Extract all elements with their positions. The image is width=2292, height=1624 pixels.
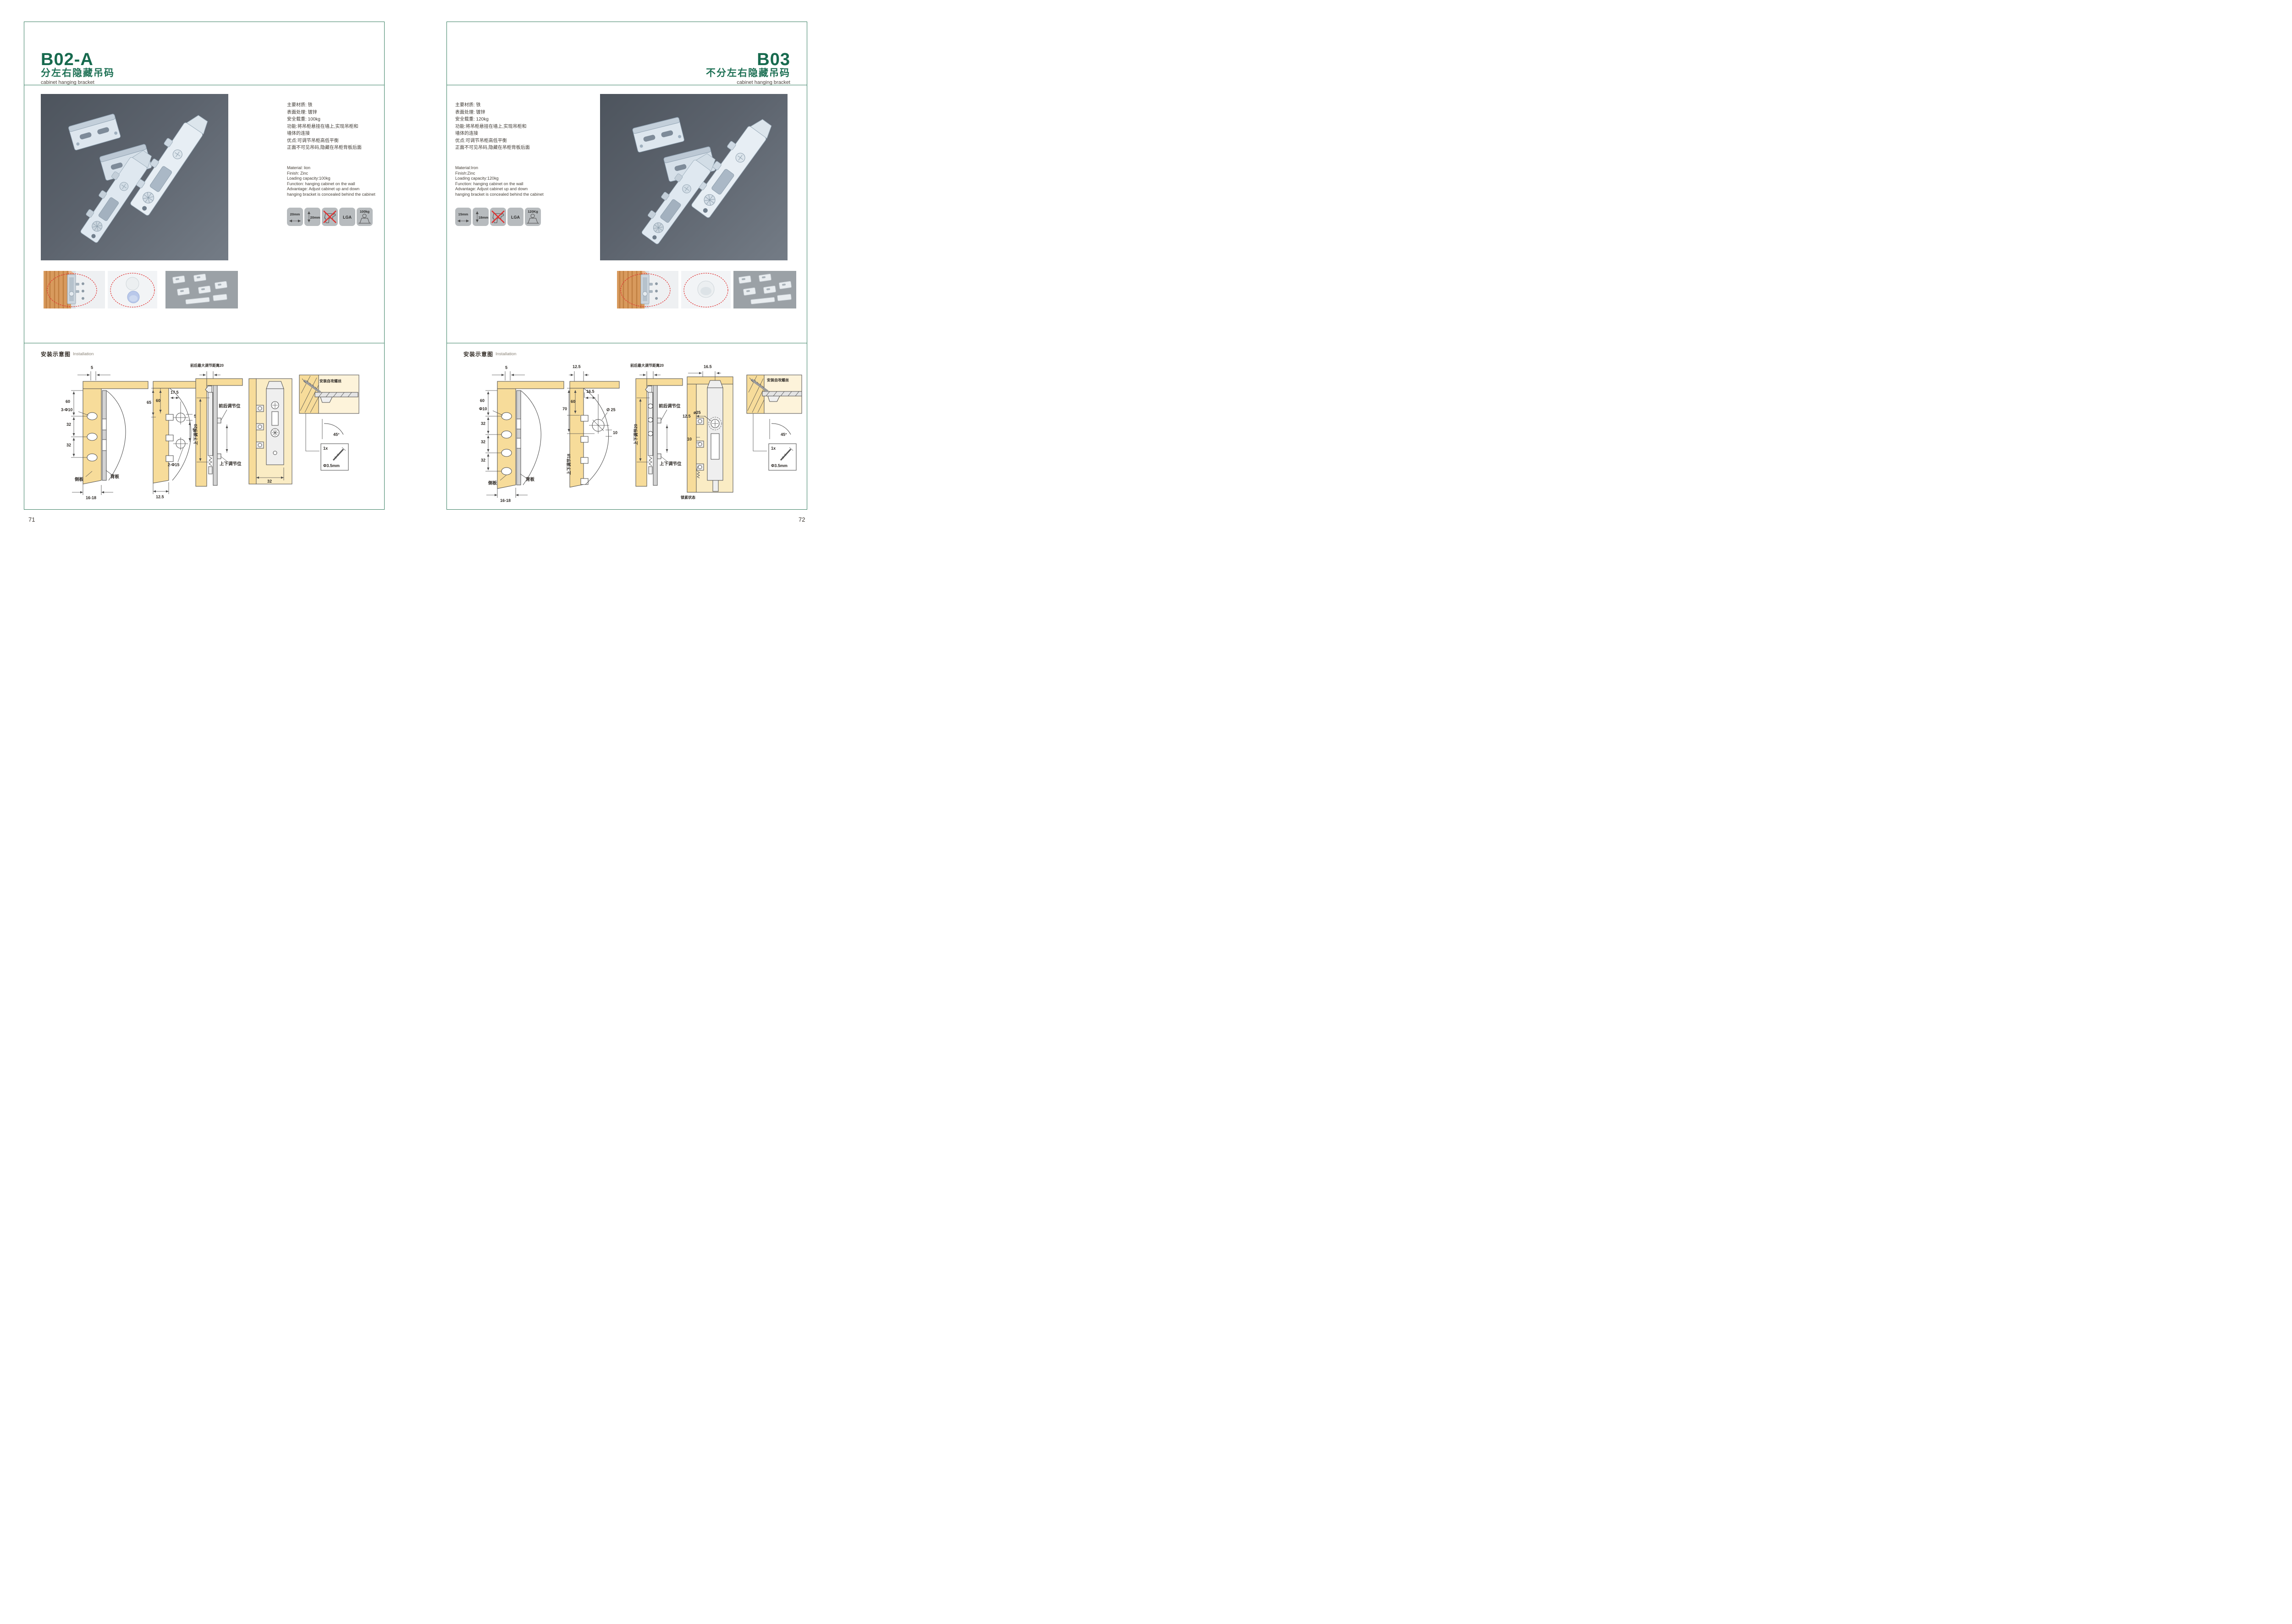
diagram-side-section: 前后最大调节距离20 上下调节20 前后调节位 上下调节位 (193, 365, 243, 502)
lga-certification-icon: LGA (339, 208, 355, 226)
spec-line: Loading capacity:100kg (287, 176, 395, 182)
diagram-side-section: 前后最大调节距离20 上下调节20 前后调节位 上下调节位 (633, 365, 683, 502)
diagram-screw-detail: 安装自攻螺丝 45° 1x Φ3.5mm (296, 365, 362, 502)
section-divider (447, 343, 807, 343)
product-code: B03 (757, 51, 790, 68)
spec-line: Advantage: Adjust cabinet up and down (287, 187, 395, 192)
header-divider (24, 85, 384, 85)
spec-line: 安全载重: 120kg (455, 116, 563, 123)
load-capacity-icon: 120Kg (525, 208, 541, 226)
spec-line: 墙体的连接 (287, 130, 395, 138)
product-title-cn: 不分左右隐藏吊码 (706, 68, 790, 78)
feature-icons: 20mm 20mm LGA 100kg (287, 208, 373, 226)
spec-line: 正面不可见吊码,隐藏在吊柜背板后面 (287, 144, 395, 152)
thumb-cover-caps-photo (681, 271, 731, 308)
spec-line: hanging bracket is concealed behind the … (455, 192, 563, 198)
width-adjust-icon: 20mm (287, 208, 303, 226)
lga-certification-icon: LGA (507, 208, 523, 226)
catalog-page-b03: B03 不分左右隐藏吊码 cabinet hanging bracket 主要材… (446, 22, 807, 510)
bracket-photo-illustration (600, 94, 788, 260)
spec-line: 墙体的连接 (455, 130, 563, 138)
diagram-screw-detail: 安装自攻螺丝 45° 1x Φ3.5mm (745, 365, 804, 502)
page-number-left: 71 (28, 516, 35, 523)
thumb-bracket-set-photo (165, 271, 238, 308)
spec-line: 表面处理: 镀锌 (455, 109, 563, 116)
product-title-cn: 分左右隐藏吊码 (41, 68, 115, 78)
spec-line: Loading capacity:120kg (455, 176, 563, 182)
no-drill-icon (322, 208, 338, 226)
header-divider (447, 85, 807, 85)
diagram-side-panel: 5 60 Φ10 32 32 32 侧板 背板 16-18 (479, 365, 566, 502)
spec-line: Material: lion (287, 165, 395, 171)
thumb-bracket-set-photo (733, 271, 796, 308)
spec-line: Advantage: Adjust cabinet up and down (455, 187, 563, 192)
catalog-page-b02a: B02-A 分左右隐藏吊码 cabinet hanging bracket (24, 22, 385, 510)
diagram-front-view: 32 (249, 365, 292, 502)
spec-line: Function: hanging cabinet on the wall (287, 182, 395, 187)
diagram-hole-positions: 12.5 16.5 70 60 Ø 25 10 上下调节18 (567, 365, 622, 502)
spec-line: 优点:可调节吊柜高低平衡 (455, 138, 563, 145)
spec-line: 表面处理: 镀锌 (287, 109, 395, 116)
specs-english: Material:Iron Finish:Zinc Loading capaci… (455, 165, 563, 197)
install-section-title-cn: 安装示意图 (463, 350, 493, 358)
spec-line: 主要材质: 铁 (455, 102, 563, 109)
product-code: B02-A (41, 51, 94, 68)
height-adjust-icon: 20mm (304, 208, 320, 226)
thumb-cover-caps-photo (108, 271, 157, 308)
spec-line: 优点:可调节吊柜高低平衡 (287, 138, 395, 145)
load-capacity-icon: 100kg (357, 208, 373, 226)
specs-english: Material: lion Finish: Zinc Loading capa… (287, 165, 395, 197)
installation-diagrams: 5 60 Φ10 32 32 32 侧板 背板 16-18 (447, 365, 807, 505)
no-drill-icon (490, 208, 506, 226)
spec-line: 安全载重: 100kg (287, 116, 395, 123)
spec-line: 主要材质: 铁 (287, 102, 395, 109)
installation-diagrams: 5 60 3-Φ10 32 32 侧板 背板 16-18 (24, 365, 384, 505)
spec-line: 正面不可见吊码,隐藏在吊柜背板后面 (455, 144, 563, 152)
page-number-right: 72 (799, 516, 805, 523)
install-section-title-en: Installation (496, 352, 516, 357)
width-adjust-icon: 15mm (455, 208, 471, 226)
catalog-spread: B02-A 分左右隐藏吊码 cabinet hanging bracket (0, 0, 830, 541)
thumb-installation-photo (44, 271, 105, 308)
spec-line: 功能:将吊柜悬挂在墙上,实现吊柜和 (287, 123, 395, 131)
spec-line: Finish: Zinc (287, 171, 395, 176)
bracket-photo-illustration (41, 94, 228, 260)
diagram-front-view: 16.5 12.5 10 ø25 锁紧状态 (683, 365, 733, 502)
specs-chinese: 主要材质: 铁 表面处理: 镀锌 安全载重: 100kg 功能:将吊柜悬挂在墙上… (287, 102, 395, 152)
thumb-installation-photo (617, 271, 678, 308)
feature-icons: 15mm 18mm LGA 120Kg (455, 208, 541, 226)
diagram-side-panel: 5 60 3-Φ10 32 32 侧板 背板 16-18 (65, 365, 149, 502)
specs-chinese: 主要材质: 铁 表面处理: 镀锌 安全载重: 120kg 功能:将吊柜悬挂在墙上… (455, 102, 563, 152)
spec-line: Finish:Zinc (455, 171, 563, 176)
height-adjust-icon: 18mm (473, 208, 489, 226)
spec-line: Material:Iron (455, 165, 563, 171)
spec-line: hanging bracket is concealed behind the … (287, 192, 395, 198)
spec-line: Function: hanging cabinet on the wall (455, 182, 563, 187)
product-photo (600, 94, 788, 260)
install-section-title-cn: 安装示意图 (41, 350, 71, 358)
install-section-title-en: Installation (73, 352, 94, 357)
spec-line: 功能:将吊柜悬挂在墙上,实现吊柜和 (455, 123, 563, 131)
section-divider (24, 343, 384, 343)
product-photo (41, 94, 228, 260)
